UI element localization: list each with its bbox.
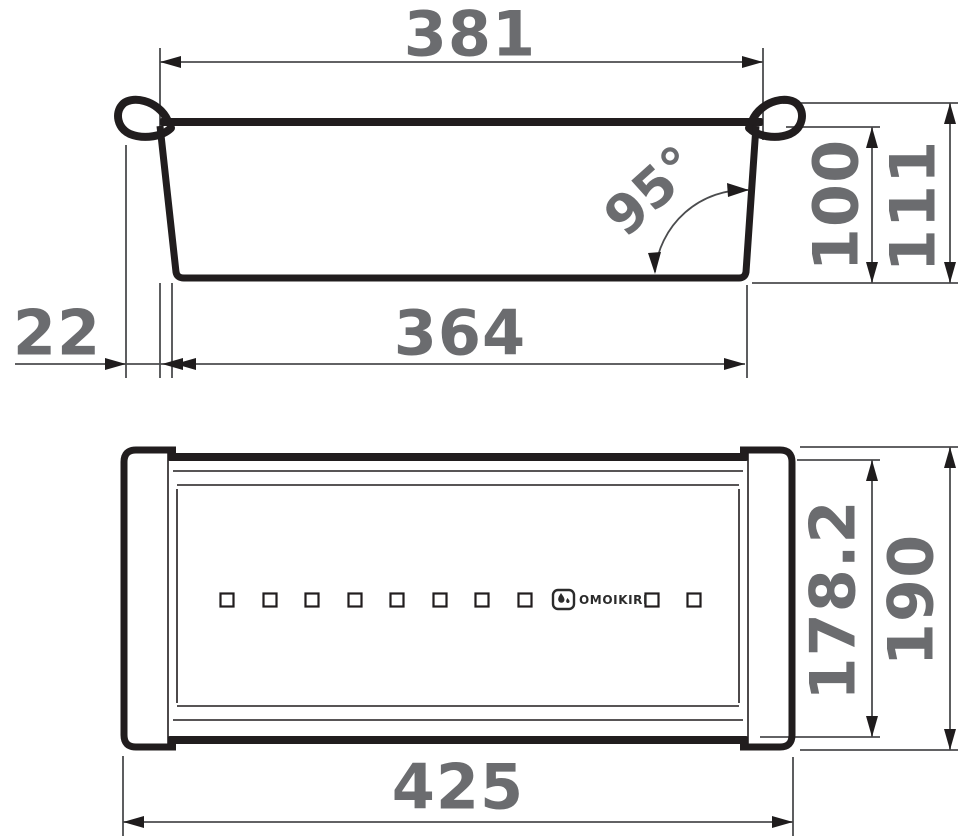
label-length-overall: 425 <box>392 751 524 824</box>
label-height-outer: 111 <box>877 140 950 272</box>
technical-drawing-page: 381 22 364 100 111 95° <box>0 0 960 840</box>
water-drop-icon <box>558 593 564 603</box>
arrow-381-right <box>742 56 763 68</box>
arrow-364-right <box>724 358 745 370</box>
colander-dimension-drawing: 381 22 364 100 111 95° <box>0 0 960 840</box>
small-drop-icon <box>566 598 569 603</box>
arrow-angle-bottom <box>648 252 661 274</box>
drain-hole <box>434 594 447 607</box>
labels-top: 425 178.2 190 <box>392 499 948 823</box>
drain-hole <box>221 594 234 607</box>
label-depth-outer: 190 <box>875 534 948 666</box>
drain-hole <box>264 594 277 607</box>
brand-logo-text: OMOIKIRI <box>579 593 648 607</box>
arrow-425-left <box>123 816 144 828</box>
tray-bottom-edge <box>168 736 748 744</box>
drain-hole <box>306 594 319 607</box>
bowl-rim <box>160 118 763 126</box>
drain-hole <box>391 594 404 607</box>
arrow-190-bottom <box>944 729 956 750</box>
arrow-381-left <box>160 56 181 68</box>
tray-top-edge <box>168 453 748 461</box>
drain-hole <box>349 594 362 607</box>
arrow-190-top <box>944 447 956 468</box>
drain-hole <box>476 594 489 607</box>
arrow-178-top <box>866 460 878 481</box>
labels-side: 381 22 364 100 111 95° <box>13 0 950 370</box>
drain-hole <box>519 594 532 607</box>
arrow-angle-top <box>727 183 749 197</box>
label-width-top: 381 <box>404 0 536 71</box>
top-view: OMOIKIRI 425 178.2 190 <box>123 447 958 836</box>
label-width-bottom: 364 <box>394 297 526 370</box>
label-wall-angle: 95° <box>592 133 710 248</box>
label-hook-offset: 22 <box>13 297 101 370</box>
brand-logo: OMOIKIRI <box>553 590 648 609</box>
arrow-178-bottom <box>866 716 878 737</box>
arrow-22-left <box>105 358 126 370</box>
label-height-inner: 100 <box>800 139 873 271</box>
arrow-111-top <box>944 103 956 124</box>
label-depth-inner: 178.2 <box>797 499 870 700</box>
side-view: 381 22 364 100 111 95° <box>13 0 958 378</box>
arrow-425-right <box>772 816 793 828</box>
drain-hole <box>688 594 701 607</box>
